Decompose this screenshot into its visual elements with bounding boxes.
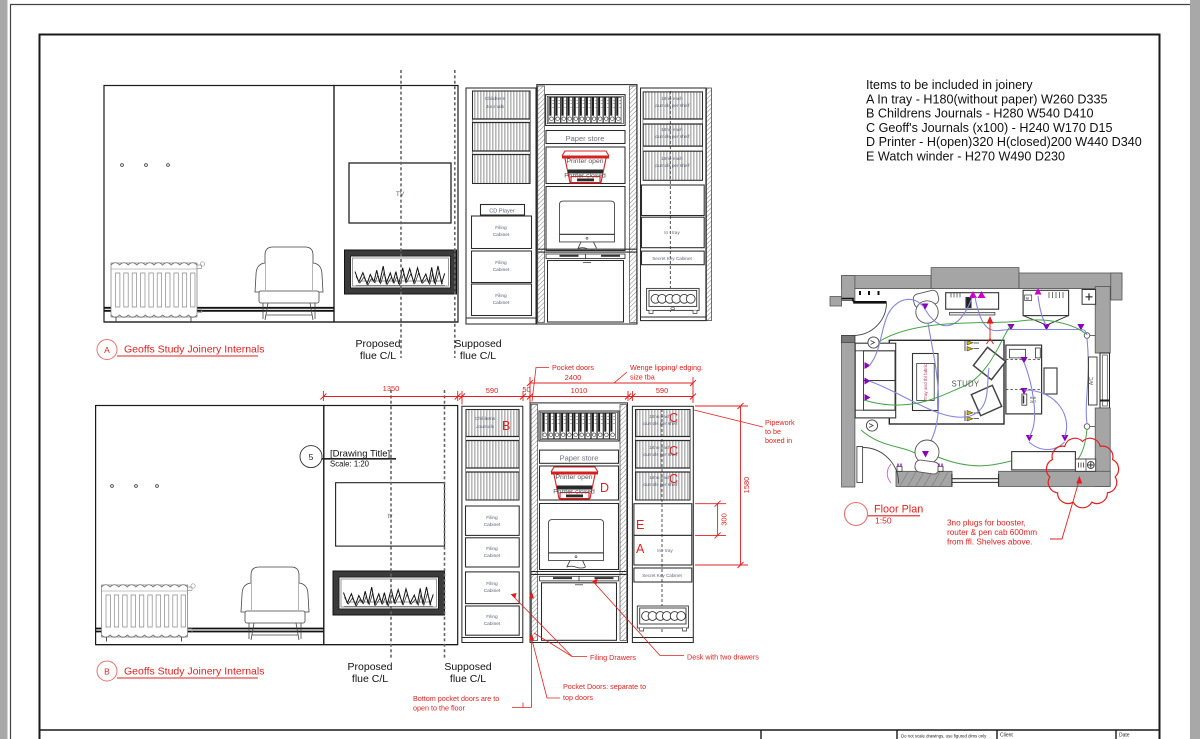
svg-text:Filing Drawers: Filing Drawers (590, 653, 636, 662)
svg-text:open to the floor: open to the floor (413, 704, 466, 713)
svg-text:Floor Plan: Floor Plan (874, 504, 923, 516)
svg-text:journals per shelf: journals per shelf (654, 163, 691, 168)
svg-text:18no each: 18no each (661, 96, 683, 101)
svg-text:Date: Date (1119, 733, 1130, 739)
svg-text:Cabinet: Cabinet (484, 621, 501, 627)
svg-text:B: B (502, 419, 510, 433)
svg-text:Pipework: Pipework (765, 418, 795, 427)
svg-text:18no each: 18no each (649, 475, 671, 480)
svg-text:18no each: 18no each (649, 414, 671, 419)
svg-text:Filing: Filing (495, 260, 507, 266)
svg-text:to be: to be (765, 427, 781, 436)
svg-text:Proposed: Proposed (356, 338, 401, 350)
svg-text:Cabinet: Cabinet (493, 232, 510, 238)
svg-text:Paper store: Paper store (566, 134, 605, 143)
svg-text:from ffl. Shelves above.: from ffl. Shelves above. (947, 538, 1032, 547)
svg-text:Filing: Filing (495, 293, 507, 299)
svg-text:Cabinet: Cabinet (484, 588, 501, 594)
svg-text:Items to be included in joiner: Items to be included in joinery (866, 78, 1033, 92)
svg-text:Do not scale drawings, use fig: Do not scale drawings, use figured dims … (901, 734, 987, 739)
svg-text:In - tray: In - tray (664, 230, 680, 235)
svg-text:Tray and tbl fabric: Tray and tbl fabric (923, 363, 928, 400)
svg-text:Geoffs Study Joinery Internals: Geoffs Study Joinery Internals (124, 666, 264, 678)
svg-text:flue C/L: flue C/L (450, 673, 486, 685)
svg-text:B: B (104, 667, 110, 677)
svg-text:STUDY: STUDY (952, 380, 980, 389)
svg-text:top doors: top doors (563, 693, 593, 702)
svg-text:18no each: 18no each (649, 445, 671, 450)
svg-text:journals per shelf: journals per shelf (654, 134, 691, 139)
svg-text:Paper store: Paper store (560, 454, 599, 463)
svg-text:Desk with two drawers: Desk with two drawers (687, 653, 759, 662)
svg-text:Childrens: Childrens (485, 96, 506, 102)
svg-text:router & pen cab 600mm: router & pen cab 600mm (947, 528, 1037, 537)
svg-text:flue C/L: flue C/L (352, 673, 388, 685)
svg-text:B Childrens Journals - H280 W5: B Childrens Journals - H280 W540 D410 (866, 107, 1094, 121)
svg-text:1:50: 1:50 (875, 516, 892, 526)
svg-text:Secret Key Cabinet: Secret Key Cabinet (642, 573, 682, 578)
svg-text:Journals: Journals (486, 104, 505, 110)
svg-text:flue C/L: flue C/L (360, 350, 396, 362)
svg-text:Cabinet: Cabinet (484, 553, 501, 559)
svg-text:Pocket doors: Pocket doors (552, 363, 594, 372)
svg-text:boxed in: boxed in (765, 436, 792, 445)
svg-text:Cabinet: Cabinet (484, 522, 501, 528)
svg-text:18no each: 18no each (661, 127, 683, 132)
svg-text:1350: 1350 (383, 384, 400, 393)
svg-text:E: E (636, 518, 644, 532)
svg-text:Bottom pocket doors are to: Bottom pocket doors are to (413, 694, 499, 703)
svg-text:Filing: Filing (486, 515, 498, 521)
svg-text:A: A (104, 345, 110, 355)
svg-text:Filing: Filing (486, 581, 498, 587)
svg-text:[Drawing Title]: [Drawing Title] (330, 449, 390, 460)
svg-text:C: C (669, 444, 678, 458)
svg-text:Filing: Filing (486, 614, 498, 620)
svg-text:E Watch winder - H270 W490 D23: E Watch winder - H270 W490 D230 (866, 150, 1065, 164)
svg-text:D: D (600, 481, 609, 495)
svg-text:A In tray - H180(without paper: A In tray - H180(without paper) W260 D33… (866, 92, 1108, 106)
svg-text:size tba: size tba (630, 373, 655, 382)
svg-text:Filing: Filing (495, 225, 507, 231)
svg-text:18no each: 18no each (661, 156, 683, 161)
svg-text:C Geoff's Journals (x100) - H2: C Geoff's Journals (x100) - H240 W170 D1… (866, 121, 1112, 135)
svg-text:Childrens: Childrens (475, 416, 496, 422)
svg-text:Proposed: Proposed (348, 661, 393, 673)
svg-text:CD Player: CD Player (489, 209, 515, 215)
svg-text:A/C: A/C (1089, 376, 1095, 385)
svg-text:Client: Client (1000, 733, 1013, 739)
svg-text:C: C (669, 472, 678, 486)
svg-text:Filing: Filing (486, 546, 498, 552)
svg-text:flue C/L: flue C/L (460, 350, 496, 362)
svg-text:Wenge lipping/ edging.: Wenge lipping/ edging. (630, 363, 703, 372)
svg-text:Scale: 1:20: Scale: 1:20 (330, 460, 370, 469)
svg-text:1580: 1580 (742, 477, 751, 494)
svg-text:Printer open: Printer open (566, 158, 603, 165)
svg-text:Printer closed: Printer closed (553, 489, 595, 496)
svg-text:Printer closed: Printer closed (564, 173, 606, 180)
svg-text:590: 590 (486, 386, 499, 395)
svg-text:590: 590 (656, 386, 669, 395)
svg-text:Journals: Journals (476, 424, 495, 430)
svg-text:5: 5 (309, 452, 314, 462)
svg-text:tel: tel (1026, 296, 1030, 300)
svg-text:D Printer - H(open)320 H(close: D Printer - H(open)320 H(closed)200 W440… (866, 135, 1142, 149)
svg-text:Secret Key Cabinet: Secret Key Cabinet (652, 256, 692, 261)
svg-text:Cabinet: Cabinet (493, 300, 510, 306)
svg-text:2400: 2400 (565, 373, 582, 382)
svg-text:50: 50 (522, 385, 530, 394)
svg-text:1010: 1010 (571, 386, 588, 395)
svg-text:Geoffs Study Joinery Internals: Geoffs Study Joinery Internals (124, 344, 264, 356)
svg-text:C: C (669, 411, 678, 425)
svg-text:3no plugs for booster,: 3no plugs for booster, (947, 519, 1026, 528)
svg-text:Printer open: Printer open (555, 474, 592, 481)
svg-text:In - tray: In - tray (657, 548, 673, 553)
svg-text:300: 300 (720, 513, 729, 526)
svg-text:journals per shelf: journals per shelf (654, 103, 691, 108)
svg-text:Supposed: Supposed (454, 338, 501, 350)
svg-text:Supposed: Supposed (444, 661, 491, 673)
svg-text:Cabinet: Cabinet (493, 267, 510, 273)
svg-text:A: A (636, 542, 645, 556)
svg-text:Pocket Doors: separate to: Pocket Doors: separate to (563, 682, 646, 691)
